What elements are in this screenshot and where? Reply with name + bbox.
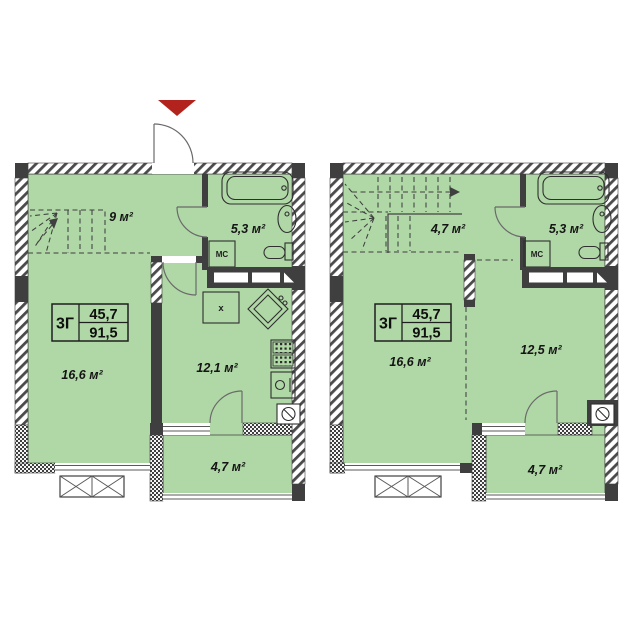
bathroom-area-label: 5,3 м²	[549, 222, 584, 236]
hall-area-label: 9 м²	[109, 210, 134, 224]
type-label: 3Г	[379, 316, 397, 333]
area-total: 91,5	[412, 326, 440, 342]
area-upper: 45,7	[89, 307, 117, 323]
plan-first-level: МС х	[15, 100, 305, 501]
area-total: 91,5	[89, 326, 117, 342]
vent-shaft	[587, 400, 618, 426]
balcony-area-label: 4,7 м²	[210, 460, 246, 474]
closet-label: МС	[216, 250, 229, 259]
wardrobe	[207, 267, 297, 288]
french-balcony-rail	[60, 476, 124, 497]
room-large-area-label: 16,6 м²	[389, 355, 431, 369]
fridge-label: х	[218, 303, 224, 314]
hall-area-label: 4,7 м²	[430, 222, 466, 236]
area-upper: 45,7	[412, 307, 440, 323]
plan-second-level: МС 3Г 45,7 91,5 4,7 м² 5,3 м² 16,6 м²	[330, 163, 618, 501]
french-balcony-rail	[375, 476, 441, 497]
vent-shaft	[277, 404, 300, 424]
wardrobe	[522, 267, 612, 288]
duplex-floorplans: МС х	[0, 0, 636, 640]
balcony-area-label: 4,7 м²	[527, 463, 563, 477]
kitchen-area-label: 12,1 м²	[196, 361, 238, 375]
bathroom-area-label: 5,3 м²	[231, 222, 266, 236]
entrance-door	[152, 124, 194, 174]
entrance-arrow-icon	[158, 100, 196, 116]
type-label: 3Г	[56, 316, 74, 333]
living-area-label: 16,6 м²	[61, 368, 103, 382]
room-small-area-label: 12,5 м²	[520, 343, 562, 357]
closet-label: МС	[531, 250, 544, 259]
floorplan-canvas: МС х	[0, 0, 636, 640]
